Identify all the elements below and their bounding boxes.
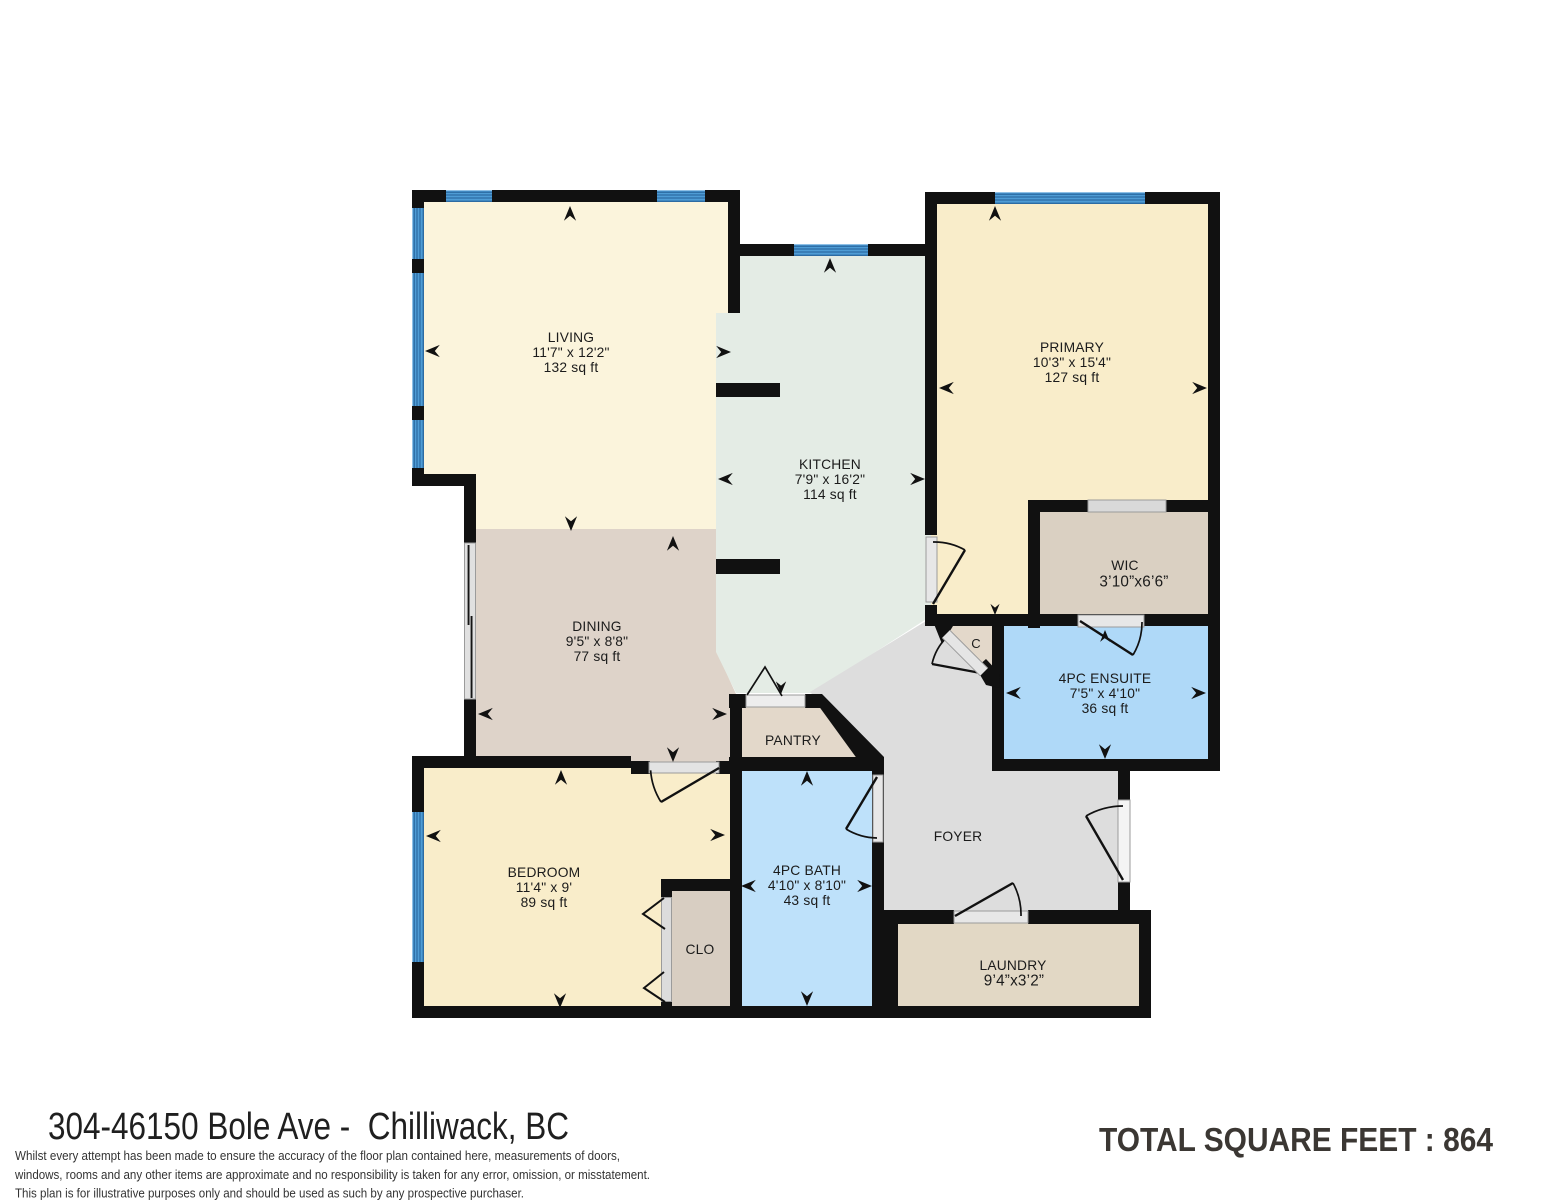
svg-text:windows, rooms and any other i: windows, rooms and any other items are a…	[14, 1167, 650, 1182]
svg-text:36 sq ft: 36 sq ft	[1082, 701, 1129, 716]
svg-text:114 sq ft: 114 sq ft	[803, 487, 857, 502]
svg-text:77 sq ft: 77 sq ft	[574, 649, 621, 664]
svg-text:DINING: DINING	[572, 619, 622, 634]
svg-text:TOTAL SQUARE FEET : 864: TOTAL SQUARE FEET : 864	[1099, 1121, 1494, 1158]
svg-text:43 sq ft: 43 sq ft	[784, 893, 831, 908]
svg-text:LAUNDRY: LAUNDRY	[979, 958, 1046, 973]
svg-text:11'7" x 12'2": 11'7" x 12'2"	[532, 345, 609, 360]
svg-text:FOYER: FOYER	[934, 829, 983, 844]
svg-text:PRIMARY: PRIMARY	[1040, 340, 1104, 355]
svg-text:Whilst every attempt has been: Whilst every attempt has been made to en…	[15, 1148, 620, 1163]
svg-text:304-46150 Bole Ave - Chilliwa: 304-46150 Bole Ave - Chilliwack, BC	[48, 1106, 569, 1148]
svg-text:This plan is for illustrative: This plan is for illustrative purposes o…	[15, 1185, 524, 1200]
svg-text:11'4" x 9': 11'4" x 9'	[516, 880, 572, 895]
svg-text:7'9" x 16'2": 7'9" x 16'2"	[795, 472, 865, 487]
svg-text:132 sq ft: 132 sq ft	[544, 360, 599, 375]
svg-text:LIVING: LIVING	[548, 330, 594, 345]
svg-text:9’4”x3’2”: 9’4”x3’2”	[984, 973, 1044, 990]
svg-text:7'5" x 4'10": 7'5" x 4'10"	[1070, 686, 1140, 701]
svg-text:WIC: WIC	[1111, 558, 1138, 573]
svg-text:C: C	[971, 636, 981, 651]
svg-text:9'5" x 8'8": 9'5" x 8'8"	[566, 634, 629, 649]
svg-text:127 sq ft: 127 sq ft	[1045, 370, 1100, 385]
svg-text:89 sq ft: 89 sq ft	[521, 895, 568, 910]
svg-text:10'3" x 15'4": 10'3" x 15'4"	[1033, 355, 1111, 370]
svg-text:4PC BATH: 4PC BATH	[773, 863, 841, 878]
svg-text:BEDROOM: BEDROOM	[508, 865, 581, 880]
svg-text:4'10" x 8'10": 4'10" x 8'10"	[768, 878, 846, 893]
svg-text:KITCHEN: KITCHEN	[799, 457, 861, 472]
svg-text:CLO: CLO	[686, 942, 715, 957]
svg-text:4PC ENSUITE: 4PC ENSUITE	[1059, 671, 1152, 686]
svg-text:PANTRY: PANTRY	[765, 733, 821, 748]
svg-text:3’10”x6’6”: 3’10”x6’6”	[1099, 574, 1168, 591]
